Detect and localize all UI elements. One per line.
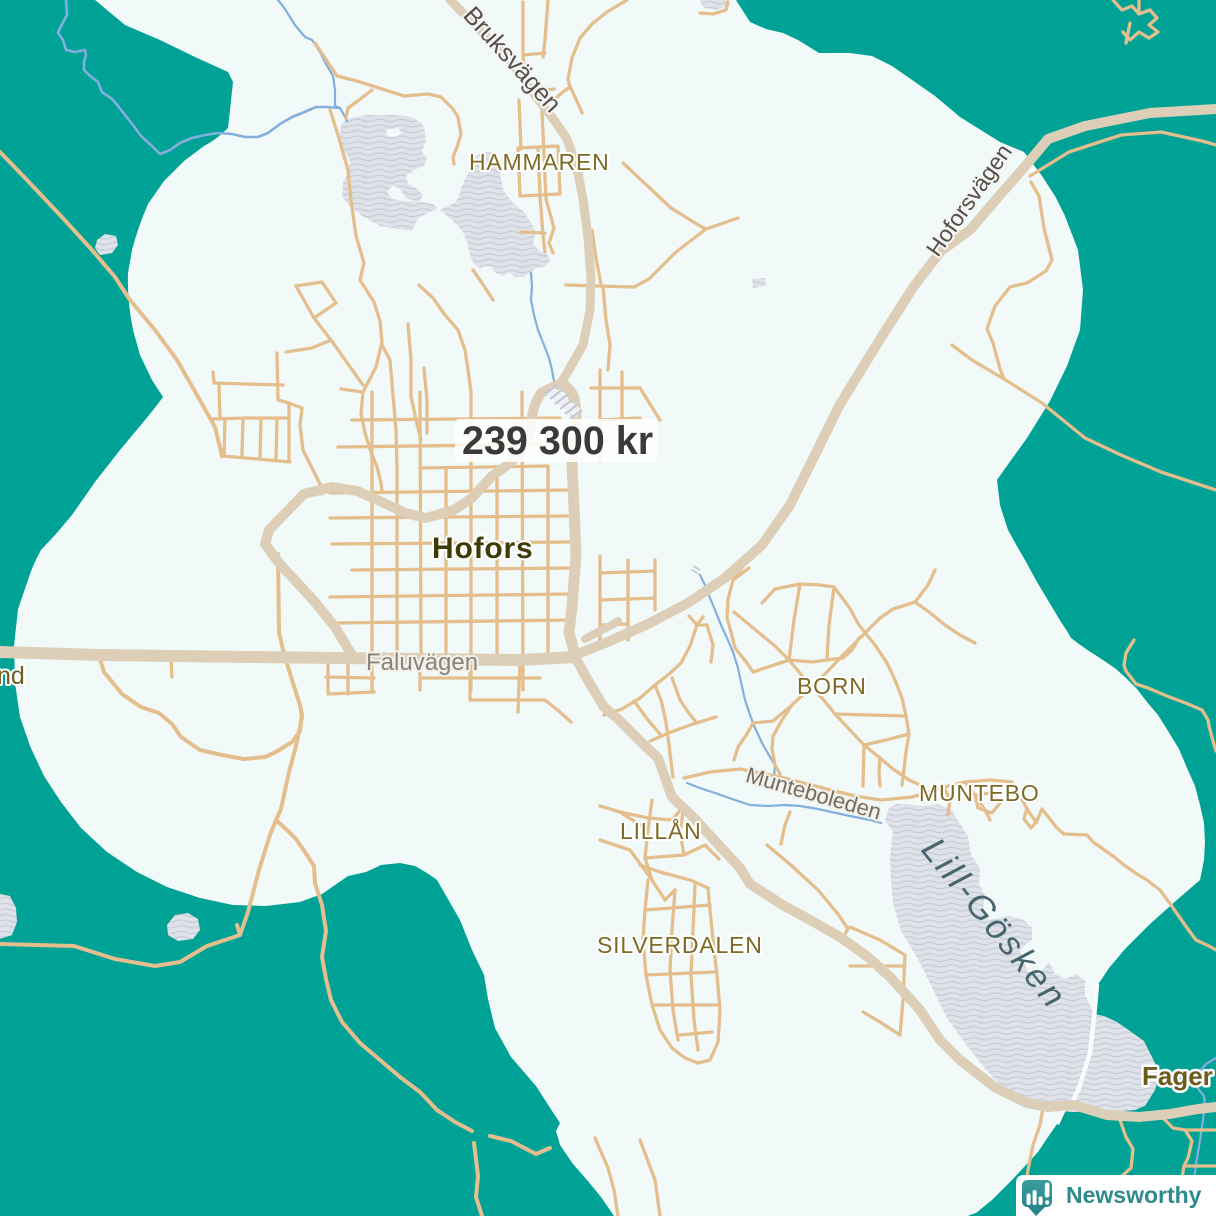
svg-text:nd: nd — [0, 662, 25, 690]
svg-text:LILLÅN: LILLÅN — [620, 817, 702, 844]
svg-text:SILVERDALEN: SILVERDALEN — [597, 932, 763, 958]
svg-text:Hofors: Hofors — [432, 532, 533, 565]
svg-text:MUNTEBO: MUNTEBO — [919, 780, 1040, 806]
svg-text:BORN: BORN — [797, 673, 867, 699]
svg-text:HAMMAREN: HAMMAREN — [469, 149, 610, 175]
svg-text:Fager: Fager — [1142, 1061, 1213, 1091]
svg-text:Faluvägen: Faluvägen — [366, 649, 478, 676]
svg-text:Newsworthy: Newsworthy — [1066, 1182, 1202, 1208]
svg-text:239 300 kr: 239 300 kr — [462, 419, 653, 463]
